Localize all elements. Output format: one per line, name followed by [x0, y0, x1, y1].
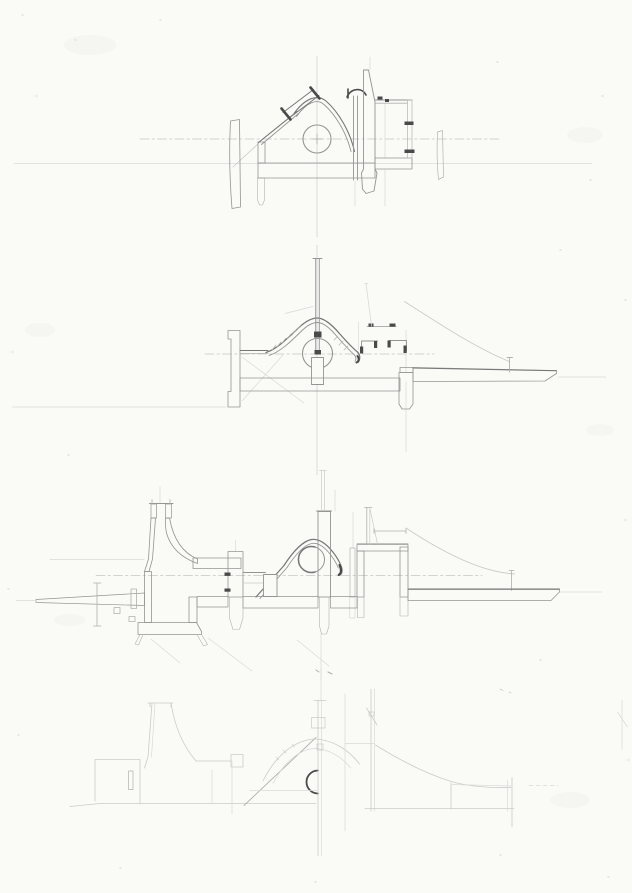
wall-clamp-mark: [405, 122, 414, 126]
slab-top-edge: [413, 368, 556, 371]
roof-post-faint: [370, 508, 378, 545]
dome-hatch-ticks: [272, 325, 348, 350]
dome-shell-outer: [294, 98, 355, 152]
pencil-drawing-canvas: [0, 0, 632, 893]
channel-flange-mark: [404, 346, 407, 354]
roof-fixing-mark: [385, 99, 389, 102]
smudge: [567, 127, 603, 143]
ghost-funnel-left: [145, 703, 153, 768]
section-drawing-4-ghost: [70, 668, 628, 856]
thin-wall-footing: [350, 597, 355, 618]
ghost-right-assembly: [345, 689, 628, 831]
smudge: [64, 35, 116, 55]
mast-pedestal: [312, 358, 324, 385]
roof-strip-mark: [390, 324, 396, 327]
vault-outer-line: [284, 539, 342, 575]
left-wall-with-flanges: [228, 331, 240, 408]
pier-body: [318, 512, 331, 598]
ghost-diagonal-stay: [367, 708, 378, 725]
ghost-pier-axis: [312, 700, 327, 856]
dome-eave-hook: [357, 356, 359, 363]
smudge: [25, 323, 55, 337]
graphite-specks: [316, 670, 332, 674]
ghost-arc-inner: [273, 749, 351, 784]
ghost-oculus-half-circle: [307, 771, 319, 794]
pipe-lines: [354, 96, 358, 180]
ghost-collar-box: [231, 755, 243, 768]
ghost-edge-marks: [618, 700, 628, 749]
section-drawing-1: [14, 56, 592, 237]
paper-specks: [8, 15, 629, 882]
faint-stay-line: [366, 284, 372, 326]
channel-flange-mark: [388, 341, 391, 348]
sloped-roof-inner: [262, 114, 299, 145]
skylight-end-cap: [311, 88, 320, 99]
sunken-pit: [135, 572, 208, 647]
wall-clamp-mark: [405, 150, 415, 154]
left-wall-slab: [230, 120, 241, 209]
pit-bottom-slab: [138, 623, 202, 635]
ghost-left-room: [95, 760, 140, 805]
paper-smudges: [8, 15, 629, 882]
vault-eave-hook: [339, 565, 341, 575]
pedestal-box: [264, 575, 278, 597]
ground-band: [331, 597, 358, 609]
tilted-skylight: [282, 88, 320, 120]
box-room: [357, 508, 408, 618]
mast-dome-joint: [314, 332, 322, 338]
room-right-wall: [408, 100, 413, 158]
ground-wedge-left: [36, 593, 145, 606]
roof-channels: [360, 284, 407, 354]
section-drawing-3: [16, 471, 602, 681]
ghost-profile-curve: [376, 745, 512, 788]
side-room: [375, 97, 415, 159]
room-underground-band: [364, 599, 400, 610]
construction-verticals: [160, 487, 353, 680]
left-wall-footing: [258, 178, 265, 205]
room-left-wall: [357, 551, 364, 597]
pit-left-wall: [145, 572, 152, 623]
ghost-box-lines: [365, 778, 514, 828]
thin-wall: [350, 548, 355, 597]
pier-clamp-mark: [225, 573, 231, 576]
pier-clamp-mark: [225, 589, 231, 592]
small-square-mark: [129, 617, 135, 622]
ghost-specks: [500, 689, 511, 693]
dimension-tick-line: [374, 529, 406, 534]
smudge: [586, 424, 614, 436]
pit-right-wall: [189, 597, 197, 623]
ground-band: [197, 597, 228, 608]
smudge: [54, 614, 86, 626]
pit-fin: [197, 635, 208, 647]
channel-flange-mark: [360, 347, 363, 354]
funnel-left-wall: [145, 518, 156, 572]
funnel-tower: [145, 500, 242, 572]
runway-ground-slab: [408, 590, 560, 601]
funnel-neck-post: [166, 504, 172, 518]
channel-flange-mark: [374, 341, 377, 348]
oculus-center-joint: [315, 350, 322, 355]
faint-profile-curve: [405, 302, 510, 362]
dome-shell: [266, 318, 360, 363]
room-wall-footing: [400, 597, 408, 616]
funnel-neck-post: [151, 504, 157, 518]
transfer-beam: [193, 558, 241, 569]
ghost-ground-line: [70, 804, 316, 807]
room-wall-footing: [358, 597, 365, 618]
faint-profile-curve: [406, 528, 515, 574]
ghost-verticals-right: [345, 689, 375, 831]
pier-left: [225, 552, 244, 630]
mast-faint-lines: [320, 471, 327, 512]
construction-diagonals: [151, 638, 329, 671]
ghost-funnel: [145, 703, 244, 768]
pier-footing: [230, 597, 244, 630]
oculus-center-mark: [312, 134, 322, 144]
right-wall-slab: [437, 131, 443, 180]
ghost-box-inner-lines: [452, 780, 511, 811]
room-right-wall: [400, 547, 408, 597]
left-wall: [258, 142, 265, 163]
drawing-sheet: [0, 0, 632, 893]
section-drawing-2: [12, 245, 606, 475]
ghost-door-outline: [129, 771, 134, 790]
small-square-mark: [114, 608, 120, 614]
pier-center: [317, 471, 332, 635]
dome-outer-line: [266, 318, 360, 362]
smudge: [550, 792, 590, 808]
pit-fin: [135, 635, 143, 646]
pier-footing: [320, 597, 330, 634]
funnel-flare-wall: [165, 518, 197, 564]
ghost-funnel-flare: [171, 703, 196, 761]
skylight-glass-line: [289, 96, 320, 119]
ground-band-center: [243, 597, 318, 609]
roof-fixing-mark: [378, 97, 383, 100]
slab-step-lip: [400, 368, 413, 373]
ghost-funnel-left-inner: [152, 703, 156, 757]
